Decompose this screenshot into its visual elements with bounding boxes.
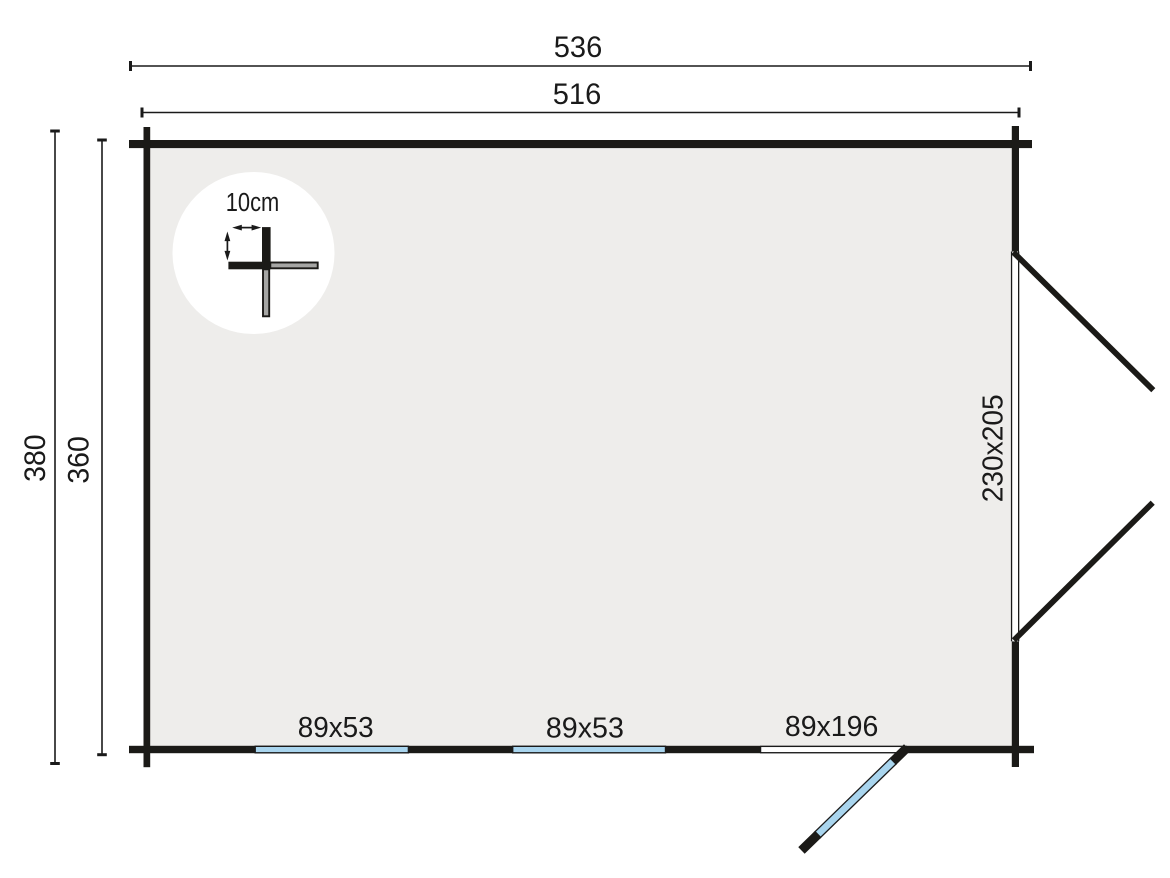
svg-text:380: 380: [19, 434, 52, 482]
svg-text:89x53: 89x53: [298, 712, 374, 744]
svg-text:360: 360: [63, 436, 96, 484]
svg-text:89x196: 89x196: [785, 711, 879, 743]
svg-text:89x53: 89x53: [546, 713, 624, 745]
svg-text:516: 516: [553, 78, 602, 111]
svg-text:230x205: 230x205: [977, 394, 1009, 502]
svg-text:536: 536: [554, 31, 603, 64]
svg-text:10cm: 10cm: [226, 189, 280, 217]
